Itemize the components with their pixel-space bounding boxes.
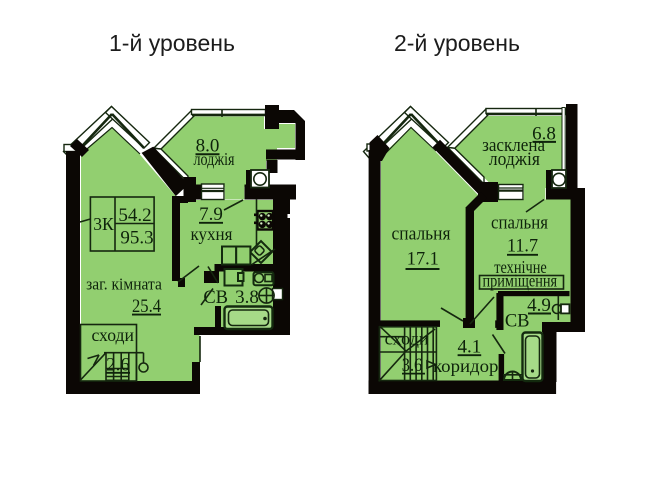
svg-text:СВ: СВ [203, 288, 228, 308]
svg-text:3.8: 3.8 [235, 287, 259, 308]
svg-text:приміщення: приміщення [483, 271, 558, 291]
svg-text:СВ: СВ [505, 312, 530, 332]
svg-text:коридор: коридор [433, 356, 498, 376]
svg-text:11.7: 11.7 [507, 237, 538, 257]
svg-text:54.2: 54.2 [118, 205, 151, 226]
svg-text:лоджія: лоджія [489, 150, 540, 170]
svg-text:сходи: сходи [91, 325, 134, 345]
svg-text:заг. кімната: заг. кімната [86, 275, 162, 294]
svg-text:2-й уровень: 2-й уровень [394, 30, 520, 56]
svg-text:17.1: 17.1 [407, 249, 439, 270]
svg-text:кухня: кухня [191, 224, 233, 244]
svg-text:лоджія: лоджія [194, 149, 235, 169]
svg-text:спальня: спальня [392, 224, 451, 244]
svg-text:спальня: спальня [491, 213, 548, 234]
svg-text:95.3: 95.3 [120, 228, 153, 249]
svg-text:1-й уровень: 1-й уровень [109, 30, 235, 56]
svg-text:3К: 3К [93, 214, 114, 234]
svg-text:сходи: сходи [385, 329, 429, 349]
